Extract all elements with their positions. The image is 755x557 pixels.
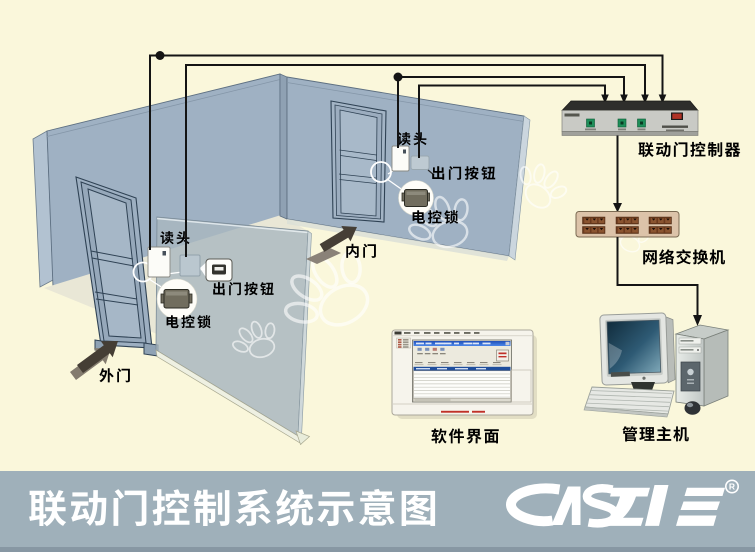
svg-text:R: R [729,482,735,492]
